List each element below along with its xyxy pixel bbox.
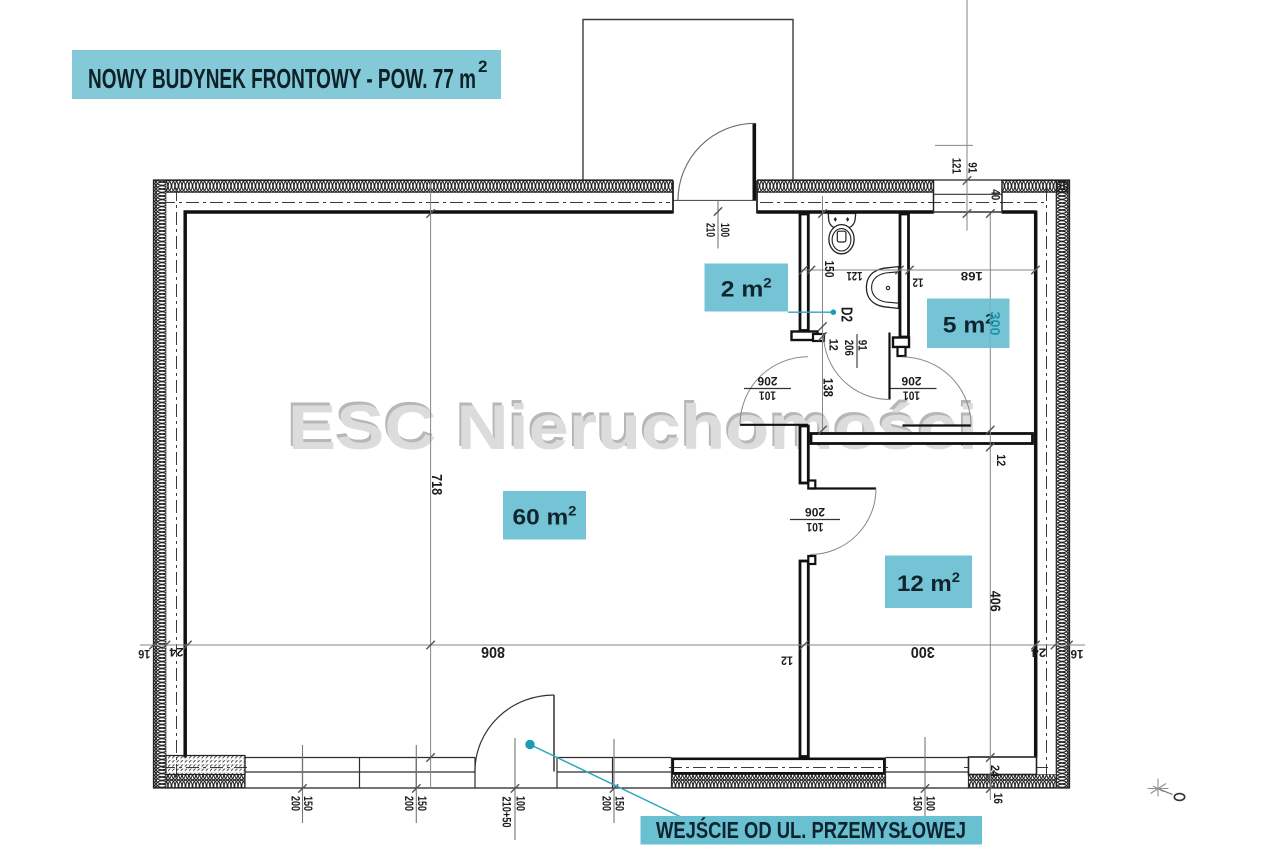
svg-text:24: 24 xyxy=(169,645,183,659)
svg-text:40: 40 xyxy=(989,189,1001,200)
svg-text:12: 12 xyxy=(781,654,793,668)
svg-text:150: 150 xyxy=(415,796,427,811)
svg-text:12 m2: 12 m2 xyxy=(897,570,960,596)
svg-text:406: 406 xyxy=(986,591,1003,612)
svg-text:150: 150 xyxy=(911,796,923,811)
svg-text:121: 121 xyxy=(846,269,863,281)
svg-text:200: 200 xyxy=(600,796,612,811)
svg-text:150: 150 xyxy=(301,796,313,811)
svg-text:WEJŚCIE OD UL. PRZEMYSŁOWEJ: WEJŚCIE OD UL. PRZEMYSŁOWEJ xyxy=(656,816,966,843)
svg-text:100: 100 xyxy=(718,223,730,237)
svg-text:206: 206 xyxy=(805,505,825,517)
svg-text:16: 16 xyxy=(138,647,150,661)
svg-text:24: 24 xyxy=(988,765,1000,778)
svg-text:300: 300 xyxy=(911,643,935,660)
svg-text:60 m2: 60 m2 xyxy=(513,503,577,529)
svg-text:806: 806 xyxy=(481,643,505,660)
svg-text:24: 24 xyxy=(1031,646,1046,660)
svg-text:91: 91 xyxy=(856,340,868,352)
svg-text:101: 101 xyxy=(806,520,824,532)
svg-text:210+50: 210+50 xyxy=(500,797,512,828)
svg-text:ESC Nieruchomości: ESC Nieruchomości xyxy=(288,393,978,463)
svg-text:100: 100 xyxy=(924,796,936,811)
svg-text:91: 91 xyxy=(965,162,977,174)
svg-text:100: 100 xyxy=(514,796,526,811)
svg-text:D2: D2 xyxy=(837,307,854,322)
svg-text:200: 200 xyxy=(402,796,414,811)
svg-text:168: 168 xyxy=(960,269,983,281)
svg-text:NOWY BUDYNEK FRONTOWY - POW. 7: NOWY BUDYNEK FRONTOWY - POW. 77 m xyxy=(88,63,476,94)
svg-text:2: 2 xyxy=(478,57,487,76)
svg-text:718: 718 xyxy=(428,474,444,495)
svg-text:138: 138 xyxy=(821,378,836,397)
svg-text:150: 150 xyxy=(613,796,625,811)
svg-text:12: 12 xyxy=(826,339,840,351)
svg-text:210: 210 xyxy=(703,223,715,237)
svg-text:101: 101 xyxy=(902,389,920,401)
svg-text:206: 206 xyxy=(758,374,778,386)
svg-text:101: 101 xyxy=(758,389,776,401)
svg-text:150: 150 xyxy=(822,261,837,278)
svg-text:206: 206 xyxy=(842,340,854,356)
svg-text:12: 12 xyxy=(913,276,924,288)
svg-text:16: 16 xyxy=(1070,647,1083,661)
svg-text:206: 206 xyxy=(902,374,922,386)
svg-text:300: 300 xyxy=(986,312,1003,336)
svg-text:12: 12 xyxy=(994,454,1008,466)
svg-text:16: 16 xyxy=(991,793,1003,804)
svg-text:121: 121 xyxy=(950,158,962,175)
svg-text:200: 200 xyxy=(288,796,300,811)
